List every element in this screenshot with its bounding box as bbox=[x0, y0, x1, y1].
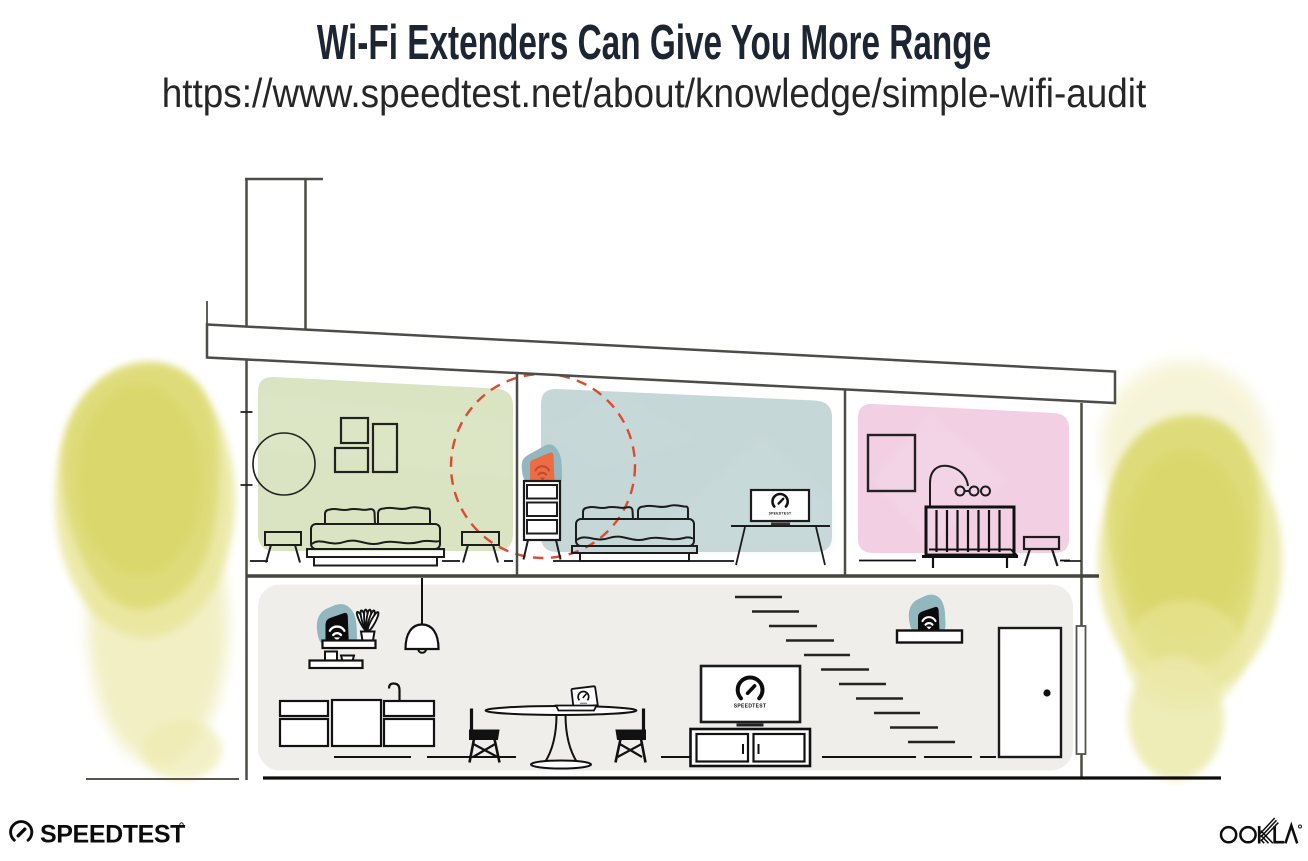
svg-text:SPEEDTEST: SPEEDTEST bbox=[769, 512, 792, 516]
svg-text:SPEEDTEST: SPEEDTEST bbox=[734, 704, 766, 710]
svg-text:SPEEDTEST: SPEEDTEST bbox=[40, 821, 185, 849]
